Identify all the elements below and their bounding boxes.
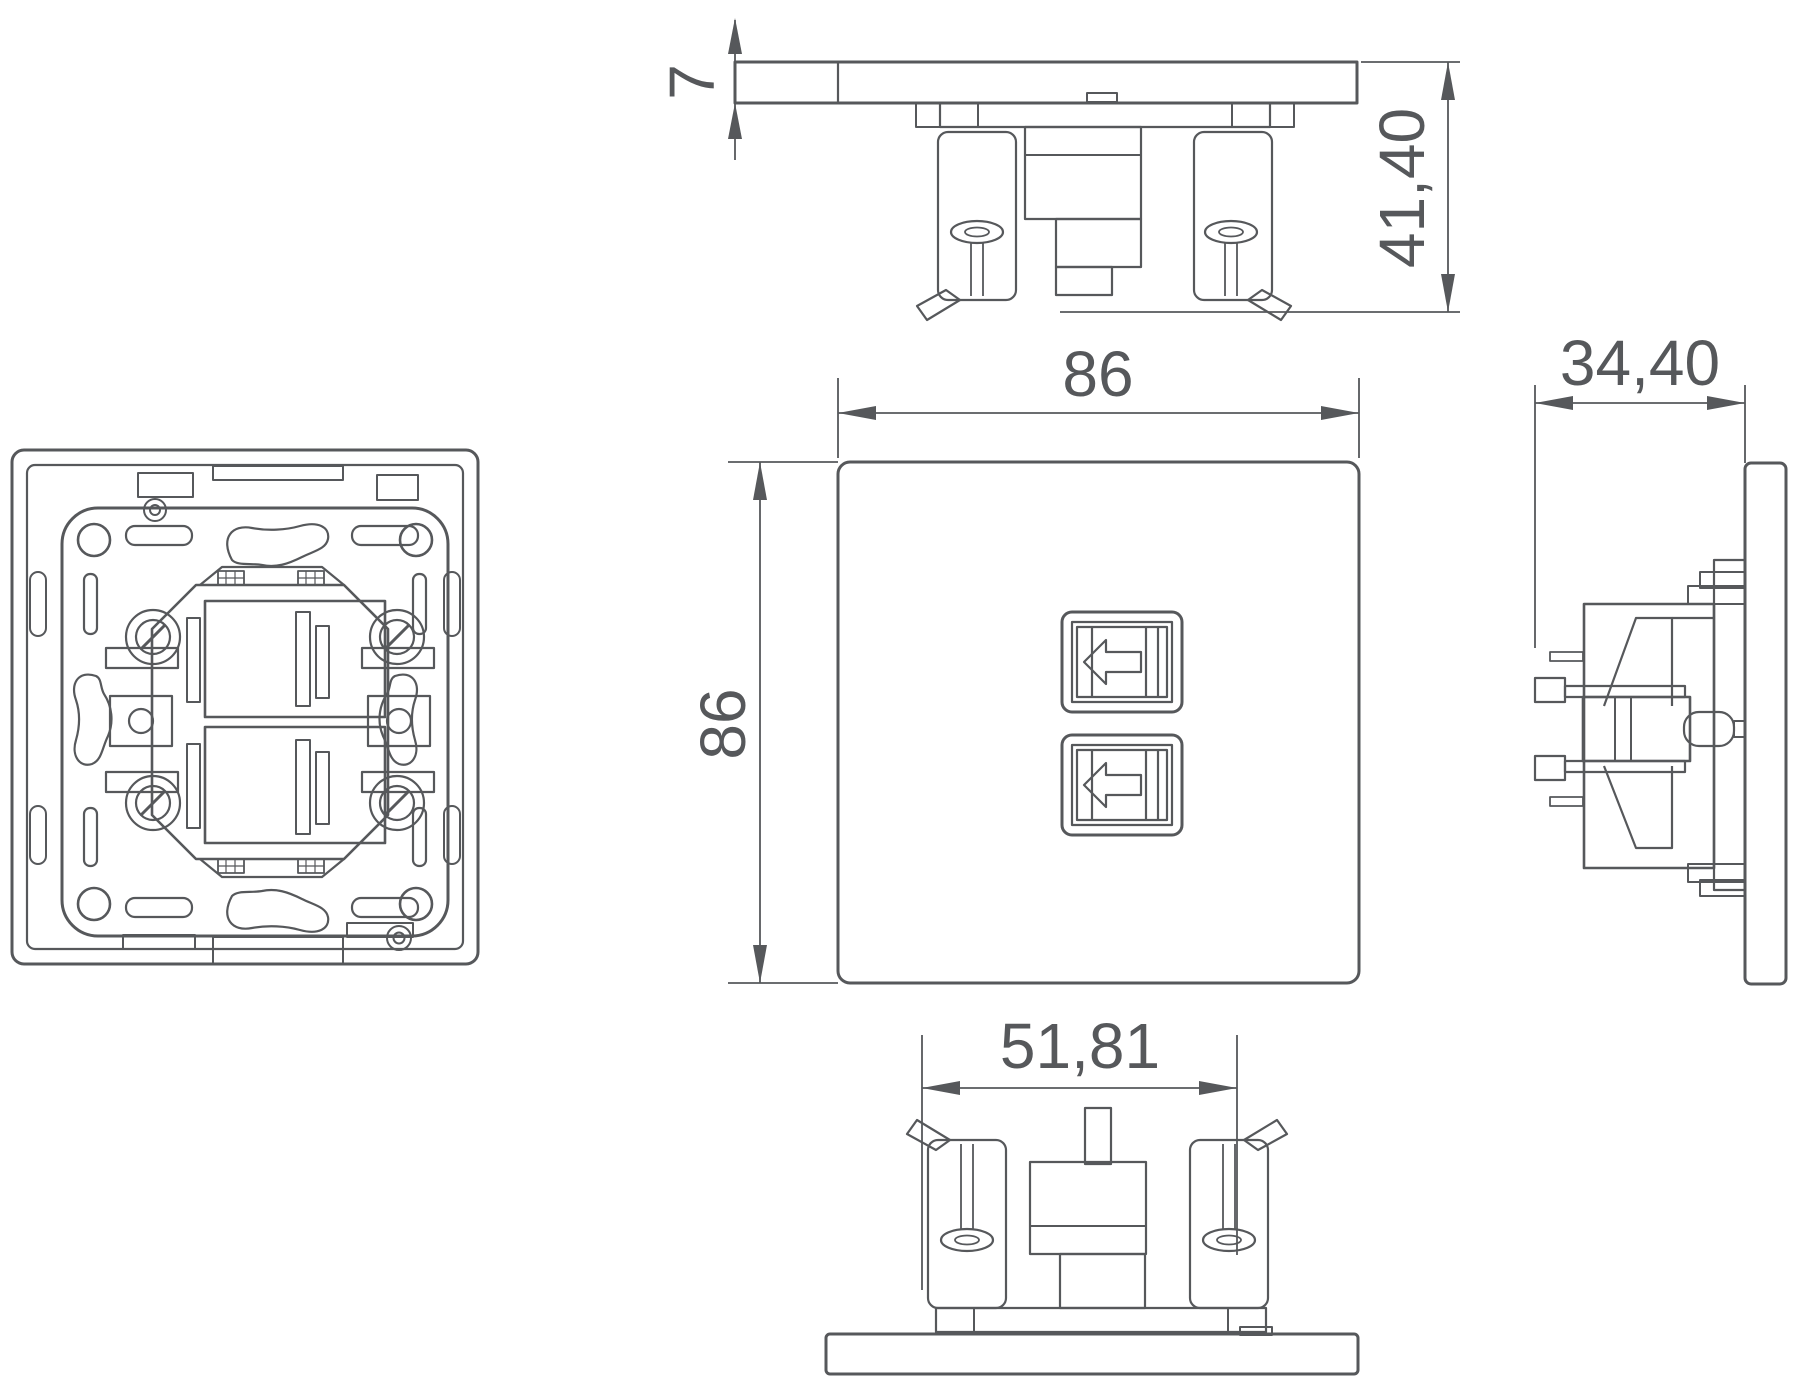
kidney-slot — [227, 890, 328, 932]
clamp-right — [362, 648, 434, 792]
dim-arrow-left-icon — [922, 1081, 960, 1095]
screw — [370, 776, 424, 830]
top-view-claw-left — [917, 132, 1016, 320]
back-view — [12, 450, 478, 964]
dimension-mount-depth: 41,40 — [1060, 62, 1460, 312]
dim-arrow-up-icon — [728, 18, 742, 54]
dimension-label-total-depth: 34,40 — [1560, 327, 1720, 399]
dimension-label-plate-thickness: 7 — [656, 64, 728, 100]
dim-arrow-right-icon — [1199, 1081, 1237, 1095]
top-view-faceplate — [735, 62, 1357, 103]
frame-screw-hole — [144, 499, 166, 521]
dimension-front-width: 86 — [838, 338, 1359, 458]
clamp-left — [106, 648, 178, 792]
kidney-slot — [227, 524, 328, 566]
technical-drawing-page: 7 41,40 — [0, 0, 1800, 1384]
front-view-faceplate — [838, 462, 1359, 983]
dimension-label-front-width: 86 — [1062, 338, 1133, 410]
bottom-view-faceplate — [826, 1334, 1358, 1374]
side-view-mechanism — [1535, 572, 1745, 896]
side-view-screw-head — [1684, 712, 1734, 746]
dim-arrow-left-icon — [838, 406, 876, 420]
back-view-mounting-yoke — [62, 508, 448, 936]
dimension-plate-thickness: 7 — [656, 18, 742, 160]
dimension-label-mount-depth: 41,40 — [1366, 108, 1438, 268]
dimension-front-height: 86 — [687, 462, 838, 983]
dim-arrow-up-icon — [728, 103, 742, 139]
top-view-mechanism — [916, 103, 1294, 320]
yoke-hole — [78, 888, 110, 920]
rocker-button-up — [1062, 612, 1182, 712]
technical-drawing-canvas: 7 41,40 — [0, 0, 1800, 1384]
dim-arrow-right-icon — [1321, 406, 1359, 420]
bottom-view-mechanism — [907, 1108, 1287, 1332]
kidney-slot — [74, 675, 111, 765]
front-view — [838, 462, 1359, 983]
yoke-hole — [78, 524, 110, 556]
bottom-view-claw-right — [1190, 1120, 1287, 1308]
bottom-view — [826, 1108, 1358, 1374]
top-view — [735, 62, 1357, 320]
dimension-label-mechanism-width: 51,81 — [1000, 1010, 1160, 1082]
screw — [370, 610, 424, 664]
dim-arrow-down-icon — [1441, 274, 1455, 312]
top-view-claw-right — [1194, 132, 1291, 320]
back-view-mechanism — [106, 567, 434, 877]
dim-arrow-down-icon — [753, 945, 767, 983]
side-view-faceplate — [1745, 463, 1786, 984]
dim-arrow-up-icon — [1441, 62, 1455, 100]
rocker-button-down — [1062, 735, 1182, 835]
side-view — [1535, 463, 1786, 984]
dimension-label-front-height: 86 — [687, 688, 759, 759]
dim-arrow-up-icon — [753, 462, 767, 500]
